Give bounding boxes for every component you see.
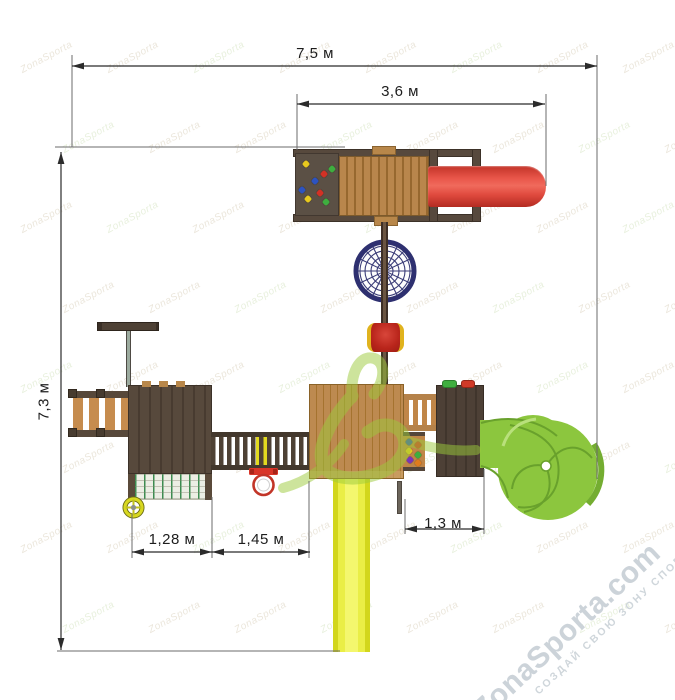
dim-label-total-width: 7,5 м xyxy=(280,45,350,62)
dim-upper-width xyxy=(297,101,545,108)
extension-lines xyxy=(55,55,597,651)
dim-label-right-platform: 1,3 м xyxy=(408,515,478,532)
dimension-lines xyxy=(0,0,675,700)
dim-label-upper-width: 3,6 м xyxy=(365,83,435,100)
dim-total-width xyxy=(72,63,597,70)
dim-left-platform xyxy=(132,549,212,556)
dim-label-bridge: 1,45 м xyxy=(226,531,296,548)
dim-bridge xyxy=(212,549,310,556)
dim-label-total-depth: 7,3 м xyxy=(36,367,53,437)
dim-total-depth xyxy=(58,152,65,650)
playground-dimension-diagram: ZonaSportaZonaSportaZonaSportaZonaSporta… xyxy=(0,0,675,700)
dim-label-left-platform: 1,28 м xyxy=(137,531,207,548)
